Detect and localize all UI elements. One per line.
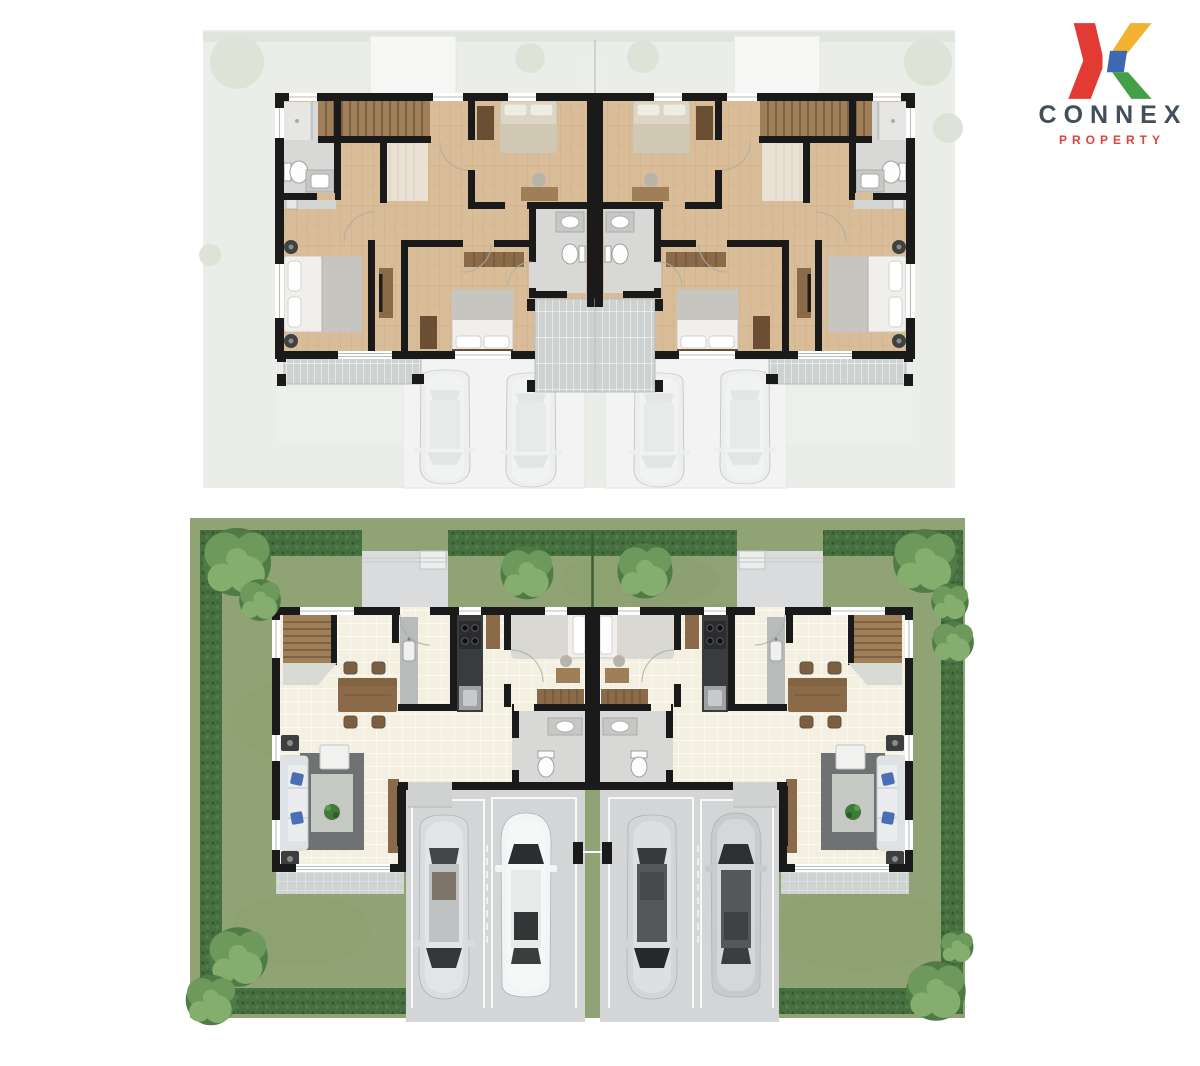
floor-plans-canvas [0, 0, 1200, 1066]
unit-right-2f [595, 93, 915, 392]
ghost-porch [370, 36, 456, 94]
logo-brand-text: CONNEX [1032, 101, 1194, 130]
ghost-porch [734, 36, 820, 94]
ghost-terrace [787, 387, 913, 445]
car-suv-gray [705, 813, 767, 997]
first-floor-plan [186, 518, 974, 1025]
connex-x-icon [1067, 22, 1153, 100]
logo-tagline-text: PROPERTY [1030, 133, 1194, 147]
car-sedan-darkroof [621, 815, 683, 999]
car-suv-white [495, 813, 557, 997]
second-floor-plan [199, 30, 963, 488]
ghost-terrace [277, 387, 403, 445]
connex-logo: CONNEX PROPERTY [1026, 22, 1194, 147]
car-sedan-silver [413, 815, 475, 999]
unit-left-2f [275, 93, 595, 392]
